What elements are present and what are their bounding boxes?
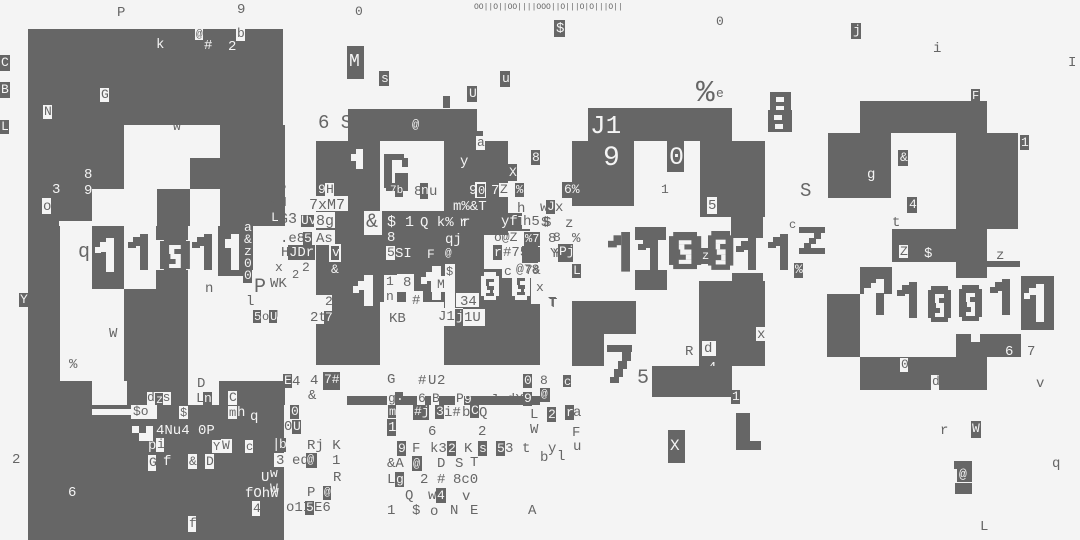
svg-text:q: q (78, 241, 90, 264)
svg-text:J1: J1 (590, 111, 621, 141)
svg-text:l: l (246, 294, 254, 310)
svg-text:1: 1 (661, 182, 669, 197)
svg-text:&: & (308, 388, 317, 404)
svg-text:c: c (564, 375, 571, 389)
svg-text:&A: &A (387, 456, 404, 472)
svg-text:5: 5 (304, 231, 312, 246)
svg-text:0: 0 (244, 268, 252, 283)
svg-text:G: G (101, 87, 109, 102)
svg-text:&: & (189, 454, 197, 469)
svg-text:KB: KB (389, 311, 406, 327)
svg-text:m: m (229, 406, 236, 420)
svg-text:4: 4 (310, 373, 318, 389)
svg-text:2: 2 (548, 407, 556, 422)
svg-text:@: @ (413, 457, 420, 471)
svg-text:L: L (530, 407, 538, 423)
svg-text:d: d (932, 374, 940, 389)
svg-text:8: 8 (548, 231, 556, 247)
svg-text:Q: Q (405, 488, 413, 504)
svg-text:l: l (557, 449, 565, 465)
svg-text:$: $ (556, 21, 564, 37)
svg-text:x: x (536, 280, 544, 295)
svg-text:.: . (396, 389, 404, 404)
svg-text:9: 9 (603, 143, 620, 174)
svg-text:WK: WK (270, 276, 287, 292)
svg-text:c: c (504, 264, 512, 279)
svg-text:2: 2 (478, 424, 486, 440)
svg-text:x: x (757, 327, 765, 343)
svg-text:9: 9 (84, 183, 92, 199)
svg-text:7: 7 (491, 183, 499, 199)
svg-text:3: 3 (276, 453, 284, 469)
svg-text:@: @ (196, 29, 203, 41)
svg-text:1: 1 (1021, 135, 1029, 150)
svg-text:4: 4 (909, 197, 917, 212)
svg-text:8g: 8g (316, 213, 334, 230)
svg-text:F: F (427, 247, 435, 262)
svg-text:#: # (437, 472, 445, 488)
svg-text:8: 8 (403, 275, 411, 291)
svg-text:C: C (471, 403, 479, 418)
svg-text:m: m (389, 405, 396, 419)
svg-text:JDr: JDr (289, 245, 314, 261)
svg-text:@78: @78 (516, 262, 539, 277)
svg-text:L: L (271, 210, 279, 225)
svg-text:1: 1 (732, 389, 740, 404)
svg-text:0: 0 (901, 357, 909, 372)
svg-text:S: S (800, 180, 811, 202)
svg-text:@: @ (307, 453, 314, 467)
svg-text:C: C (1, 55, 9, 70)
svg-text:OO||O||OO||||OOO||O|||O|O|||O|: OO||O||OO||||OOO||O|||O|O|||O|| (474, 3, 623, 12)
svg-text:h: h (237, 405, 245, 421)
svg-text:u: u (573, 439, 581, 455)
svg-text:D: D (197, 376, 205, 392)
svg-text:6: 6 (68, 485, 76, 501)
svg-text:8c0: 8c0 (453, 472, 478, 488)
svg-text:a: a (573, 405, 581, 421)
svg-text:Z: Z (500, 182, 508, 197)
svg-text:v: v (1036, 376, 1044, 392)
svg-text:4: 4 (292, 374, 300, 390)
svg-text:5: 5 (254, 310, 261, 324)
svg-text:s: s (381, 71, 389, 86)
svg-text:M: M (508, 374, 516, 390)
svg-text:5: 5 (637, 367, 649, 390)
svg-text:0: 0 (669, 143, 684, 172)
svg-text:2: 2 (292, 268, 299, 282)
svg-text:#j: #j (414, 404, 430, 419)
svg-text:u: u (502, 71, 510, 86)
svg-text:N: N (450, 503, 458, 519)
svg-text:$: $ (412, 503, 420, 519)
svg-text:$o: $o (133, 404, 149, 419)
svg-text:U: U (293, 419, 301, 434)
svg-text:7: 7 (325, 310, 333, 325)
svg-text:z: z (996, 248, 1004, 264)
svg-text:P: P (307, 485, 315, 501)
svg-text:h5: h5 (523, 214, 540, 230)
svg-text:&: & (366, 211, 378, 234)
svg-text:P: P (456, 391, 464, 406)
svg-text:3: 3 (52, 182, 60, 198)
svg-text:U: U (469, 86, 477, 101)
svg-text:Pj: Pj (559, 244, 575, 259)
svg-text:L: L (980, 519, 988, 535)
svg-text:D: D (437, 456, 445, 472)
svg-text:$: $ (924, 246, 932, 262)
svg-text:8: 8 (387, 230, 395, 246)
svg-text:%: % (696, 76, 715, 111)
svg-text:M: M (349, 52, 360, 72)
svg-text:F: F (412, 441, 420, 457)
svg-text:C: C (229, 390, 237, 405)
svg-text:r: r (459, 215, 467, 231)
svg-text:7#: 7# (324, 372, 340, 387)
svg-text:y: y (475, 375, 483, 391)
svg-text:9: 9 (524, 391, 532, 406)
svg-text:X: X (509, 165, 517, 180)
svg-text:k3: k3 (430, 441, 447, 457)
svg-text:L: L (573, 263, 581, 278)
svg-text:b: b (540, 450, 548, 466)
svg-text:a: a (477, 135, 485, 150)
svg-text:z: z (702, 249, 709, 263)
svg-text:4: 4 (253, 501, 261, 516)
svg-text:P: P (254, 276, 266, 299)
svg-text:f: f (163, 454, 171, 470)
svg-text:1: 1 (388, 420, 396, 436)
svg-text:f: f (189, 516, 197, 531)
svg-text:$: $ (446, 265, 453, 279)
svg-text:Q: Q (479, 405, 487, 421)
svg-text:v: v (332, 245, 340, 260)
svg-text:1p: 1p (316, 260, 332, 275)
svg-text:5: 5 (708, 198, 716, 214)
svg-text:S: S (455, 456, 463, 472)
svg-text:P: P (278, 182, 286, 198)
svg-text:B: B (1, 82, 9, 97)
svg-text:o: o (430, 504, 438, 520)
svg-text:o: o (43, 199, 51, 215)
svg-text:%: % (795, 262, 803, 277)
svg-text:0: 0 (284, 419, 292, 435)
svg-text:p: p (148, 438, 156, 454)
svg-text:t: t (892, 215, 900, 231)
svg-text:7b: 7b (390, 185, 403, 197)
svg-text:W: W (530, 422, 539, 438)
svg-text:T: T (548, 295, 556, 311)
svg-text:d: d (704, 341, 712, 357)
svg-text:R: R (685, 344, 694, 360)
svg-text:6%: 6% (564, 182, 580, 197)
svg-text:A: A (528, 503, 537, 519)
svg-text:D: D (206, 454, 214, 469)
svg-text:i: i (933, 41, 941, 57)
svg-text:8: 8 (532, 150, 540, 165)
svg-text:k: k (156, 37, 164, 53)
svg-text:3: 3 (436, 404, 444, 419)
svg-text:3: 3 (505, 441, 513, 457)
svg-text:#: # (204, 38, 212, 54)
svg-text:G: G (387, 372, 395, 388)
svg-text:&: & (331, 262, 339, 277)
svg-text:o: o (262, 310, 269, 324)
svg-text:X: X (670, 437, 680, 455)
svg-text:c: c (789, 218, 796, 232)
svg-text:r: r (494, 245, 502, 260)
svg-text:2: 2 (302, 260, 310, 275)
svg-text:z: z (156, 393, 163, 407)
svg-text:%7: %7 (525, 232, 539, 246)
svg-text:q: q (1052, 456, 1060, 472)
svg-text:2: 2 (420, 472, 428, 488)
svg-text:Y: Y (550, 246, 559, 262)
svg-text:x: x (555, 200, 563, 216)
svg-text:1: 1 (332, 453, 340, 469)
svg-text:i: i (157, 437, 165, 452)
svg-text:5: 5 (497, 441, 505, 456)
svg-text:c: c (246, 440, 253, 454)
svg-text:x: x (275, 260, 283, 275)
svg-text:I: I (1068, 55, 1076, 71)
svg-text:w: w (428, 488, 437, 504)
svg-text:5: 5 (387, 245, 395, 260)
svg-text:2: 2 (437, 373, 445, 389)
svg-text:j: j (853, 23, 861, 38)
svg-text:0: 0 (716, 14, 724, 29)
svg-text:2: 2 (12, 452, 20, 468)
svg-text:@: @ (959, 467, 967, 482)
svg-text:@: @ (445, 248, 452, 260)
svg-text:t: t (522, 441, 530, 457)
svg-text:b: b (237, 26, 245, 41)
svg-text:@: @ (541, 389, 548, 401)
svg-text:6 S: 6 S (318, 112, 352, 134)
svg-text:0: 0 (524, 373, 532, 388)
svg-text:r: r (940, 423, 948, 439)
svg-text:@: @ (412, 118, 419, 132)
svg-text:1: 1 (386, 274, 394, 289)
svg-text:P: P (117, 5, 125, 21)
svg-text:W: W (222, 438, 230, 453)
svg-text:n: n (205, 281, 213, 297)
svg-text:9: 9 (318, 182, 326, 197)
svg-text:b: b (279, 437, 287, 452)
svg-text:Z: Z (900, 244, 908, 259)
svg-text:2: 2 (448, 441, 456, 456)
svg-text:8: 8 (540, 373, 548, 388)
svg-text:6: 6 (428, 424, 436, 440)
svg-text:g: g (396, 472, 404, 487)
svg-text:4Nu4 0P: 4Nu4 0P (156, 423, 215, 439)
svg-text:@: @ (324, 487, 331, 499)
svg-text:q: q (250, 409, 258, 425)
svg-text:E: E (284, 373, 292, 388)
svg-text:34: 34 (460, 294, 477, 310)
svg-text:#: # (418, 373, 426, 389)
svg-text:Y: Y (20, 292, 28, 307)
svg-text:y: y (460, 154, 468, 170)
svg-text:Rj K: Rj K (307, 438, 341, 454)
svg-text:R: R (333, 470, 342, 486)
svg-text:$ 1: $ 1 (387, 214, 414, 231)
svg-text:0: 0 (355, 4, 363, 19)
svg-text:H: H (326, 182, 334, 197)
svg-text:b: b (462, 405, 470, 421)
svg-text:L: L (1, 119, 9, 134)
svg-text:9: 9 (398, 441, 406, 456)
svg-text:0: 0 (478, 184, 485, 198)
svg-text:$: $ (180, 406, 187, 420)
svg-text:G3: G3 (279, 211, 297, 228)
svg-text:&: & (900, 150, 908, 165)
svg-text:U: U (428, 373, 436, 389)
svg-text:1U: 1U (464, 310, 481, 326)
svg-text:i#: i# (444, 405, 461, 421)
svg-text:6: 6 (1005, 344, 1013, 360)
svg-text:qj: qj (445, 232, 462, 248)
svg-text:e: e (716, 86, 724, 101)
svg-text:2: 2 (228, 39, 236, 55)
svg-text:7xM7: 7xM7 (309, 197, 345, 214)
svg-text:1: 1 (387, 503, 395, 519)
svg-text:L: L (387, 472, 395, 488)
svg-text:T: T (470, 455, 478, 471)
svg-text:W: W (972, 421, 980, 436)
svg-text:j: j (456, 309, 464, 324)
svg-text:N: N (44, 104, 52, 119)
svg-text:4: 4 (437, 488, 445, 503)
svg-text:5: 5 (306, 500, 314, 515)
svg-text:g: g (388, 391, 396, 406)
svg-text:#: # (412, 293, 420, 309)
svg-text:U: U (261, 470, 269, 486)
svg-text:7: 7 (1027, 344, 1035, 360)
svg-text:9: 9 (237, 2, 245, 18)
svg-text:x: x (532, 374, 540, 390)
svg-text:8: 8 (84, 167, 92, 183)
svg-text:F: F (972, 89, 979, 103)
svg-text:0: 0 (291, 404, 299, 419)
svg-text:SI: SI (395, 246, 412, 262)
svg-text:W: W (109, 326, 118, 342)
svg-text:o@Z: o@Z (494, 230, 518, 245)
svg-text:E6: E6 (314, 500, 331, 516)
svg-text:E: E (470, 503, 478, 519)
svg-text:2: 2 (325, 294, 333, 309)
svg-text:z: z (565, 216, 573, 232)
svg-text:G: G (149, 455, 157, 470)
svg-text:m%&T: m%&T (453, 199, 487, 215)
svg-text:y: y (548, 441, 556, 457)
svg-text:u: u (429, 184, 437, 200)
svg-text:J: J (547, 199, 555, 214)
svg-text:M: M (437, 277, 445, 292)
svg-text:w: w (173, 119, 181, 134)
svg-text:n: n (204, 391, 212, 406)
svg-text:Y: Y (213, 440, 220, 454)
svg-text:n: n (386, 289, 394, 304)
svg-text:%: % (69, 357, 78, 373)
svg-text:$: $ (541, 215, 549, 231)
svg-text:%: % (516, 183, 524, 197)
svg-text:g: g (867, 167, 875, 183)
svg-text:s: s (479, 441, 487, 456)
svg-text:-: - (496, 263, 504, 278)
svg-text:W: W (270, 481, 278, 496)
svg-text:U: U (270, 310, 277, 324)
svg-text:n: n (421, 183, 429, 198)
